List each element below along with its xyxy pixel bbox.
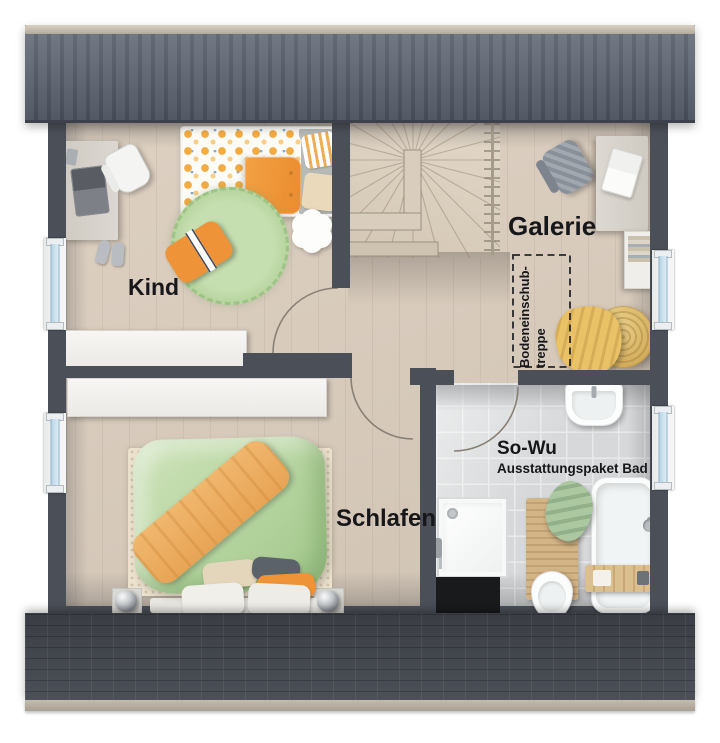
bathtub-caddy <box>585 565 659 592</box>
wardrobe-kind <box>65 330 247 368</box>
books <box>628 236 650 262</box>
window-galerie <box>652 250 674 330</box>
shoe <box>111 242 125 267</box>
attic-hatch-label: Bodeneinschub- treppe <box>517 258 555 368</box>
wall-bath-top-left <box>436 370 454 385</box>
room-label-kind: Kind <box>128 274 179 301</box>
room-sublabel-bad: Ausstattungspaket Bad <box>497 461 648 476</box>
roof-band-top <box>25 25 695 123</box>
wardrobe-schlafen <box>67 378 327 417</box>
attic-hatch-label-line1: Bodeneinschub- <box>517 258 533 368</box>
window-kind <box>44 238 66 330</box>
window-glass <box>51 419 60 487</box>
window-glass <box>659 256 668 324</box>
dark-floor-mat <box>436 577 500 614</box>
bedside-lamp-left <box>115 590 137 612</box>
wall-stairwell <box>332 118 350 288</box>
kind-flower-table <box>303 222 321 240</box>
room-label-galerie: Galerie <box>508 211 596 242</box>
roof-band-bottom <box>25 613 695 703</box>
washbasin <box>565 383 623 426</box>
stair-floor <box>348 118 500 258</box>
roof-ridge-top <box>25 25 695 34</box>
wall-bath-left <box>420 368 436 617</box>
wall-exterior-right <box>650 118 668 617</box>
roof-ridge-bottom <box>25 700 695 711</box>
window-glass <box>51 244 60 324</box>
window-bad <box>652 406 674 490</box>
floor-plan: Kind Galerie Schlafen So-Wu Ausstattungs… <box>0 0 720 743</box>
wall-bath-top-right <box>518 370 650 385</box>
room-label-bad: So-Wu <box>497 438 557 460</box>
attic-hatch-label-line2: treppe <box>533 258 549 368</box>
shower-drain <box>447 508 458 519</box>
bedside-lamp-right <box>317 590 339 612</box>
bathtub <box>591 477 656 614</box>
wall-kind-schlafen-thick <box>243 353 352 378</box>
room-label-schlafen: Schlafen <box>336 505 436 533</box>
window-glass <box>659 412 668 484</box>
window-schlafen <box>44 413 66 493</box>
